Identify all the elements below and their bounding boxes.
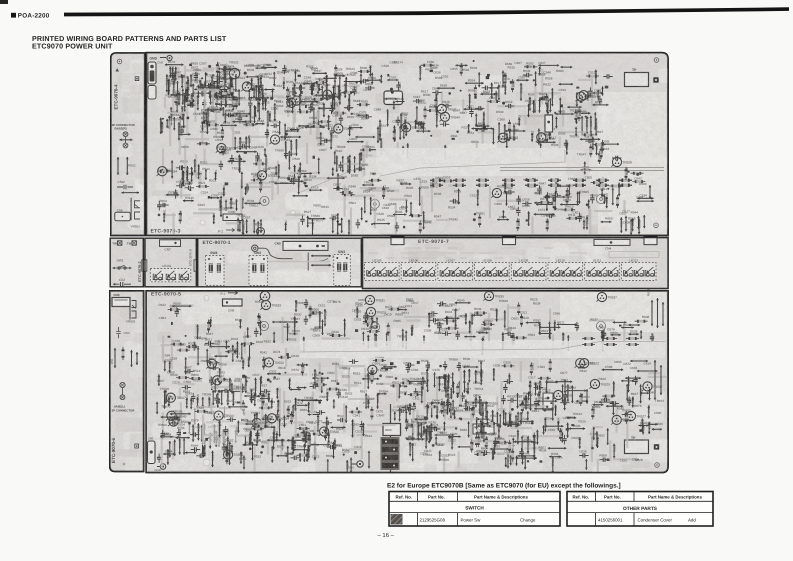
svg-text:Ref. No.: Ref. No.	[396, 495, 413, 500]
svg-text:SWITCH: SWITCH	[465, 506, 484, 511]
svg-text:Power Sw: Power Sw	[461, 518, 482, 523]
svg-text:4150256001: 4150256001	[598, 518, 623, 523]
svg-text:2129525G08: 2129525G08	[420, 518, 446, 523]
svg-text:Part No.: Part No.	[428, 495, 445, 500]
svg-text:Change: Change	[520, 518, 536, 523]
svg-text:– 16 –: – 16 –	[378, 532, 395, 539]
svg-text:ETC9070 POWER UNIT: ETC9070 POWER UNIT	[32, 43, 113, 51]
svg-text:OTHER PARTS: OTHER PARTS	[623, 506, 658, 512]
svg-text:Part No.: Part No.	[604, 495, 621, 500]
svg-text:Part Name & Descriptions: Part Name & Descriptions	[648, 495, 702, 500]
svg-text:Condenser Cover: Condenser Cover	[638, 518, 673, 523]
svg-text:Part Name & Descriptions: Part Name & Descriptions	[474, 495, 528, 500]
svg-text:POA-2200: POA-2200	[18, 12, 50, 19]
svg-text:E2 for Europe ETC9070B [Same: E2 for Europe ETC9070B [Same as ETC9070 …	[387, 483, 621, 490]
svg-text:Ref. No.: Ref. No.	[573, 495, 590, 500]
svg-text:PRINTED WIRING BOARD PATTERNS: PRINTED WIRING BOARD PATTERNS AND PARTS …	[32, 35, 227, 43]
svg-text:Add: Add	[688, 518, 696, 523]
